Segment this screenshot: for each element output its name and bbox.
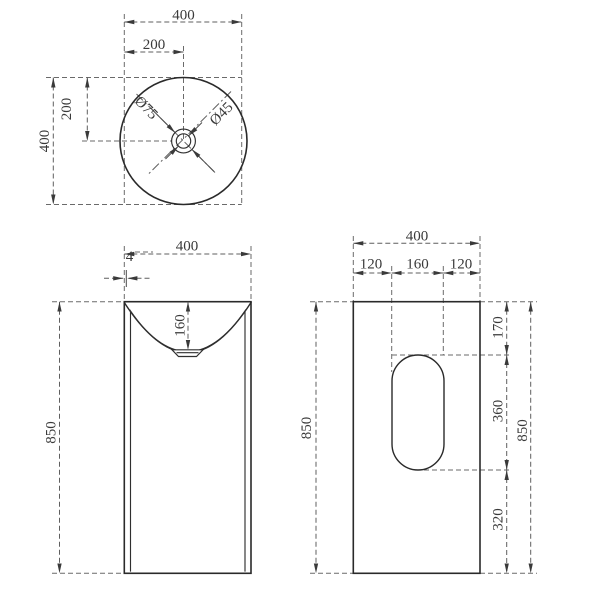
drain-outer-diameter-label: Ø75 (131, 93, 161, 123)
leader-arrow (189, 123, 202, 136)
drain-offset-x-label: 200 (143, 37, 166, 53)
segment-right-label: 120 (450, 257, 473, 273)
leader-line-drain-inner (148, 92, 231, 175)
front-width-label: 400 (176, 239, 199, 255)
rim-thickness-label: 4 (126, 249, 134, 265)
pedestal-side-outline (353, 302, 480, 574)
segment-middle-label: 160 (406, 257, 429, 273)
front-height-label: 850 (44, 421, 60, 444)
bowl-depth-label: 160 (173, 314, 189, 337)
pedestal-basin-technical-drawing: 400 200 400 200 Ø75 Ø45 400 4 160 850 (0, 0, 600, 600)
leader-arrow (166, 146, 179, 159)
side-view: 400 120 160 120 850 170 360 320 850 (299, 229, 537, 574)
segment-left-label: 120 (360, 257, 383, 273)
side-height-label: 850 (299, 417, 315, 440)
leader-arrow (192, 149, 214, 171)
top-depth-label: 400 (37, 130, 53, 153)
drawing-canvas: 400 200 400 200 Ø75 Ø45 400 4 160 850 (0, 0, 600, 600)
drain-inner-diameter-label: Ø45 (207, 99, 237, 129)
top-view: 400 200 400 200 Ø75 Ø45 (37, 8, 247, 205)
front-view: 400 4 160 850 (44, 239, 252, 574)
top-width-label: 400 (172, 8, 195, 24)
cutout-top-offset-label: 170 (491, 316, 507, 339)
cutout-height-label: 360 (491, 400, 507, 423)
drain-offset-y-label: 200 (59, 98, 75, 121)
cutout-bottom-offset-label: 320 (491, 508, 507, 531)
side-width-label: 400 (406, 229, 429, 245)
overall-height-label: 850 (515, 419, 531, 442)
back-cutout-oval (392, 355, 444, 470)
